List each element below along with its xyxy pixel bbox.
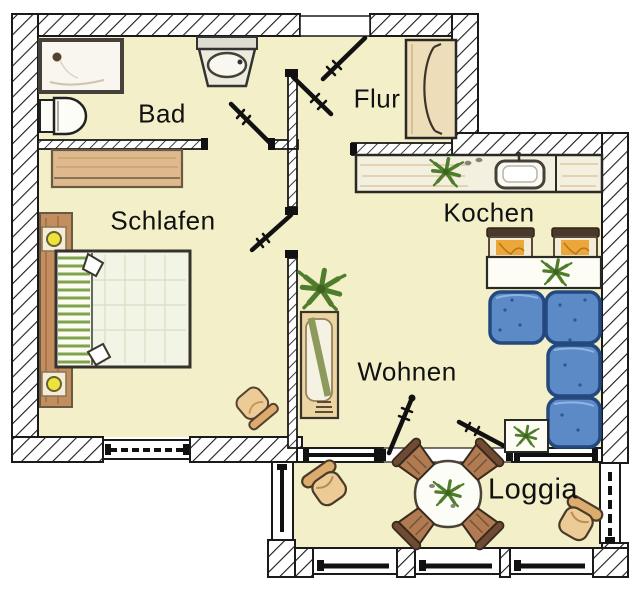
entrance-opening <box>300 16 370 36</box>
bedside-lamp-2 <box>47 377 61 391</box>
room-label-loggia: Loggia <box>488 474 578 507</box>
schlafen-wardrobe <box>52 150 182 187</box>
loggia-window-bottom-2 <box>415 548 500 574</box>
flur-wardrobe <box>406 40 456 138</box>
schlafen-window <box>103 440 190 459</box>
room-label-kochen: Kochen <box>443 198 534 229</box>
room-label-bad: Bad <box>138 99 186 130</box>
dining-chair-2 <box>552 228 599 258</box>
loggia-window-right <box>600 463 620 543</box>
shelf-cabinet <box>301 312 338 418</box>
wohnen-window-left <box>297 448 383 462</box>
floor-plan: Bad Flur Schlafen Kochen Wohnen Loggia <box>0 0 640 595</box>
kitchen-counter <box>356 152 602 192</box>
toilet <box>40 98 86 134</box>
loggia-window-left <box>272 462 293 540</box>
loggia-window-bottom-1 <box>313 548 397 574</box>
washbasin <box>197 37 257 86</box>
side-table <box>505 420 548 452</box>
room-label-schlafen: Schlafen <box>110 206 215 237</box>
dining-chair-1 <box>487 228 534 258</box>
bedside-lamp-1 <box>47 232 61 246</box>
loggia-window-bottom-3 <box>510 548 593 574</box>
room-label-flur: Flur <box>354 84 401 115</box>
room-label-wohnen: Wohnen <box>357 357 456 388</box>
bathtub <box>40 40 122 92</box>
dining-table <box>487 257 601 288</box>
